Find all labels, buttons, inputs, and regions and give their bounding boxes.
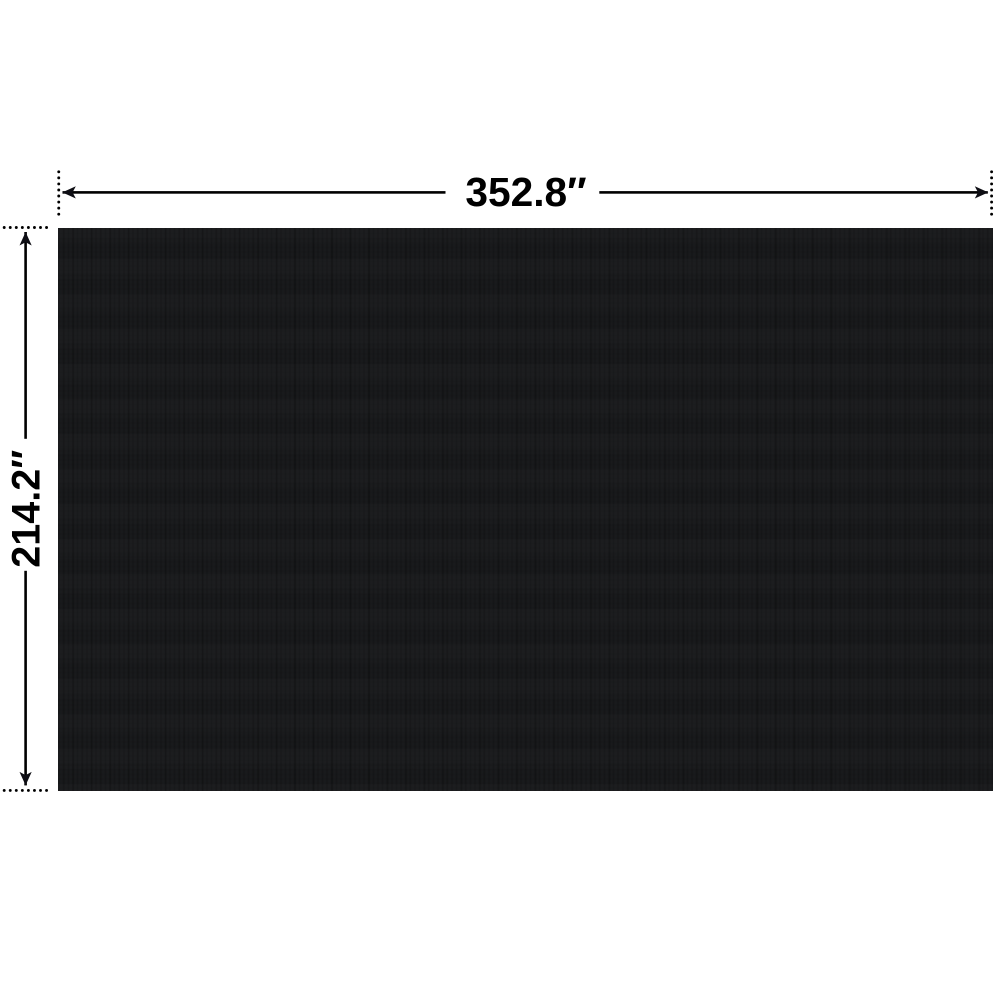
svg-text:214.2″: 214.2″ [5,450,49,568]
svg-text:352.8″: 352.8″ [465,169,586,215]
